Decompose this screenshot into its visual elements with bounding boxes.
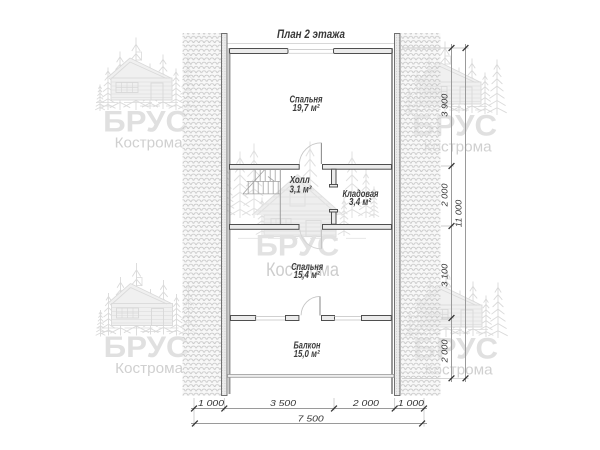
svg-text:11 000: 11 000	[455, 199, 464, 227]
svg-text:3,4 м²: 3,4 м²	[349, 197, 372, 208]
svg-text:3,1 м²: 3,1 м²	[290, 185, 313, 196]
svg-text:3 100: 3 100	[439, 263, 449, 286]
svg-text:15,0 м²: 15,0 м²	[294, 349, 321, 360]
svg-text:7 500: 7 500	[298, 414, 325, 423]
svg-text:2 000: 2 000	[439, 183, 449, 208]
svg-text:План 2 этажа: План 2 этажа	[277, 27, 345, 41]
svg-text:3 900: 3 900	[439, 93, 449, 116]
svg-text:15,4 м²: 15,4 м²	[294, 270, 321, 281]
svg-text:БРУС: БРУС	[256, 230, 340, 263]
svg-text:1 000: 1 000	[198, 399, 225, 408]
svg-text:3 500: 3 500	[270, 399, 297, 408]
svg-text:19,7 м²: 19,7 м²	[293, 103, 321, 114]
svg-text:1 000: 1 000	[398, 399, 425, 408]
svg-text:2 000: 2 000	[352, 399, 380, 408]
svg-text:2 000: 2 000	[439, 339, 449, 364]
